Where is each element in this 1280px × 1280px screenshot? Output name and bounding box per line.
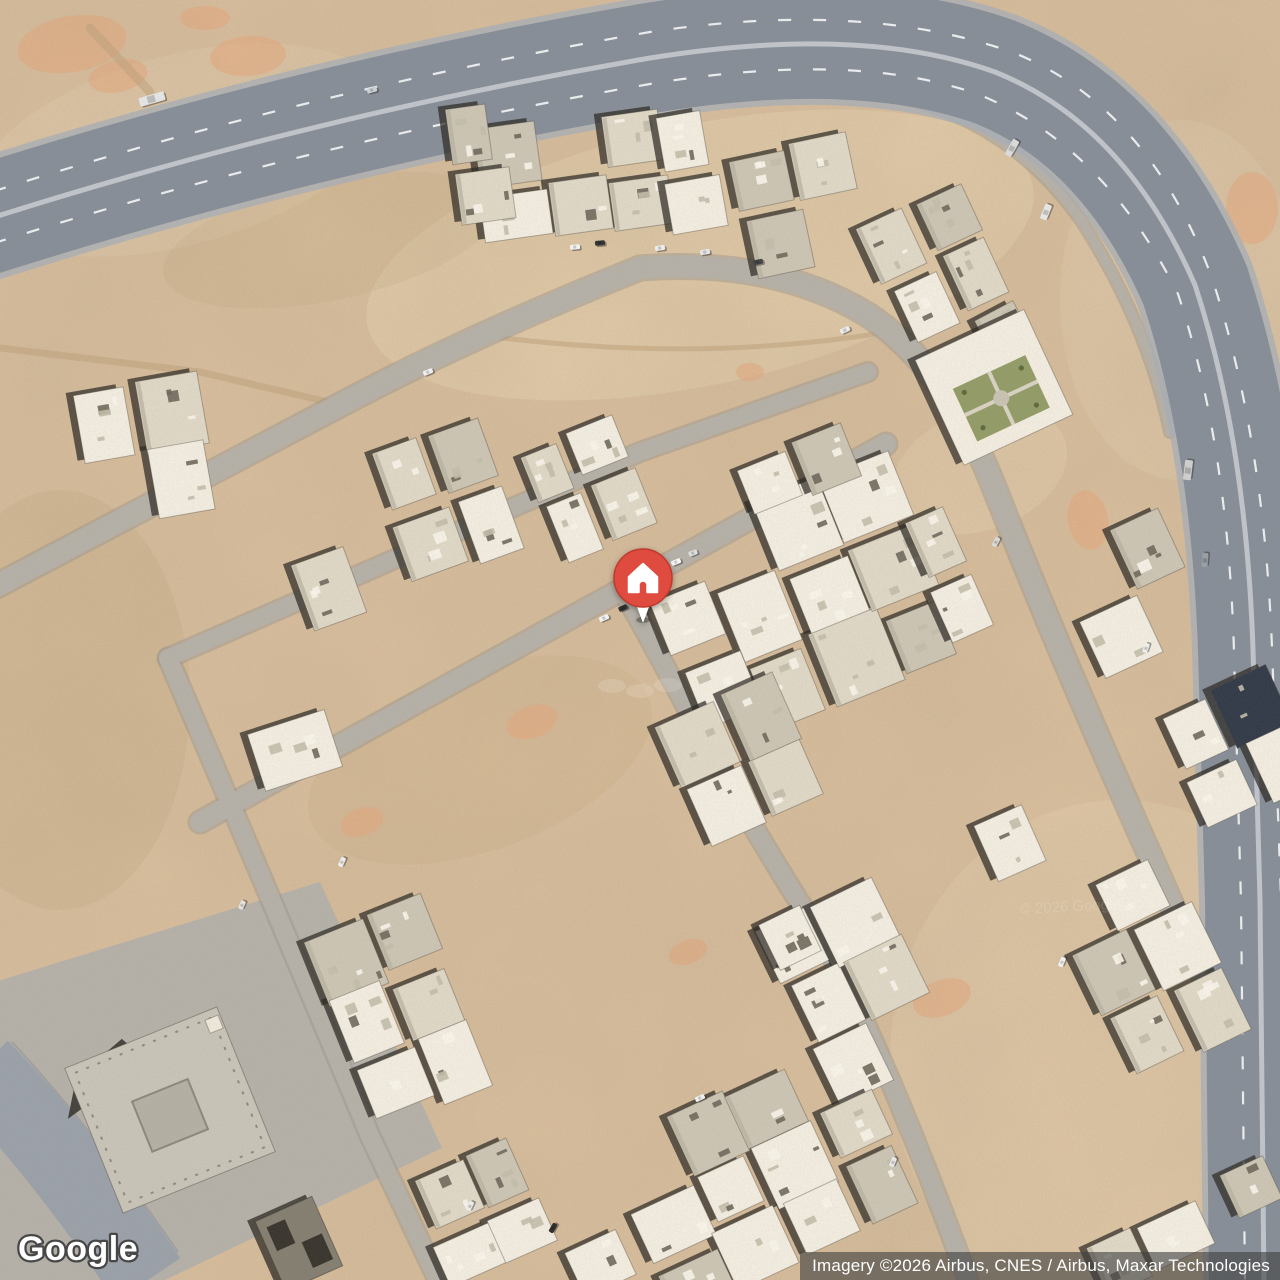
map-pin[interactable] (611, 547, 675, 625)
satellite-imagery[interactable]: © 2026 Google (0, 0, 1280, 1280)
map-viewport[interactable]: © 2026 Google Google Imagery ©2026 Airbu… (0, 0, 1280, 1280)
google-logo-text: Google (18, 1230, 138, 1268)
imagery-attribution: Imagery ©2026 Airbus, CNES / Airbus, Max… (800, 1252, 1280, 1280)
image-grain (0, 0, 1280, 1280)
google-logo[interactable]: Google (14, 1222, 254, 1274)
